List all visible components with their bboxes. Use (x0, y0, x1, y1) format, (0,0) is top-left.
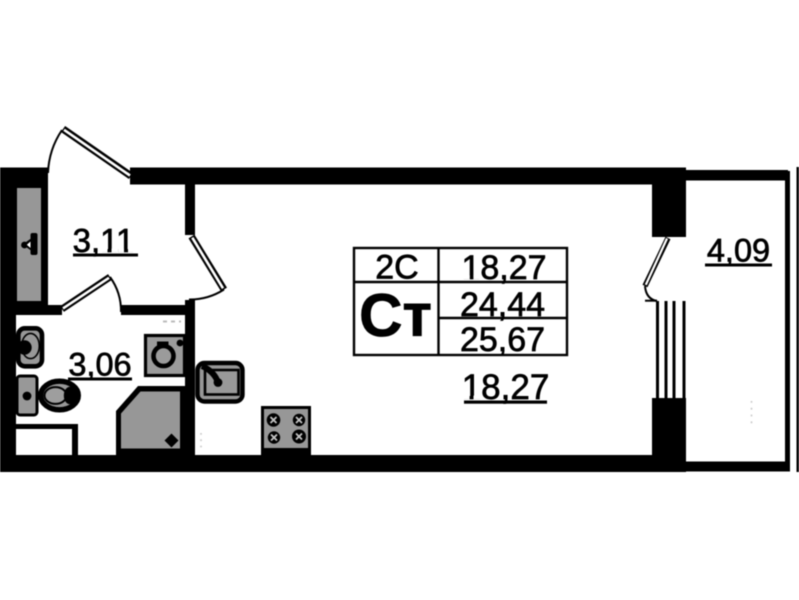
svg-text:24,44: 24,44 (460, 286, 545, 324)
svg-text:25,67: 25,67 (460, 321, 545, 359)
svg-text:3,06: 3,06 (68, 347, 131, 383)
svg-text:3,11: 3,11 (73, 222, 135, 259)
svg-text:4,09: 4,09 (707, 233, 770, 269)
svg-text:18,27: 18,27 (461, 249, 546, 287)
svg-text:2С: 2С (375, 249, 418, 287)
svg-text:Ст: Ст (359, 282, 432, 349)
